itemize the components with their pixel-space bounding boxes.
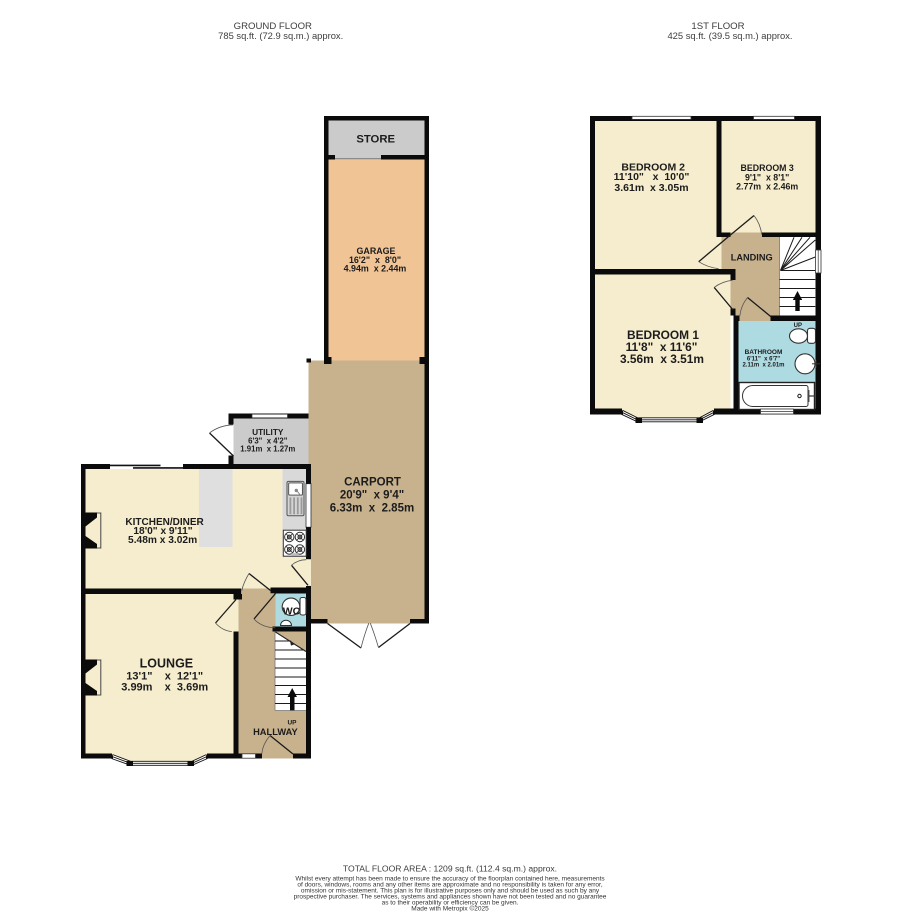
svg-text:UP: UP (287, 719, 297, 726)
svg-text:2.11m x 2.01m: 2.11m x 2.01m (742, 362, 784, 368)
svg-text:6'11" x 6'7": 6'11" x 6'7" (747, 356, 780, 362)
svg-text:4.94m x 2.44m: 4.94m x 2.44m (344, 264, 407, 274)
svg-text:BATHROOM: BATHROOM (745, 349, 783, 356)
svg-text:TOTAL FLOOR AREA : 1209 sq.ft.: TOTAL FLOOR AREA : 1209 sq.ft. (112.4 sq… (343, 863, 557, 873)
svg-text:2.77m x 2.46m: 2.77m x 2.46m (736, 182, 798, 192)
svg-text:CARPORT: CARPORT (344, 477, 401, 489)
svg-text:20'9" x 9'4": 20'9" x 9'4" (340, 490, 404, 502)
svg-text:Made with Metropix ©2025: Made with Metropix ©2025 (411, 905, 489, 913)
svg-text:3.56m x 3.51m: 3.56m x 3.51m (620, 352, 704, 366)
svg-text:5.48m x 3.02m: 5.48m x 3.02m (128, 535, 197, 546)
svg-text:BEDROOM 3: BEDROOM 3 (741, 163, 794, 173)
svg-text:3.99m x 3.69m: 3.99m x 3.69m (121, 682, 208, 694)
svg-text:3.61m x 3.05m: 3.61m x 3.05m (614, 182, 688, 194)
svg-text:1.91m x 1.27m: 1.91m x 1.27m (240, 445, 295, 454)
svg-text:LOUNGE: LOUNGE (140, 657, 193, 671)
svg-text:WC: WC (283, 606, 301, 618)
svg-text:HALLWAY: HALLWAY (253, 727, 298, 737)
svg-text:425 sq.ft. (39.5 sq.m.) approx: 425 sq.ft. (39.5 sq.m.) approx. (667, 30, 792, 41)
svg-text:785 sq.ft. (72.9 sq.m.) approx: 785 sq.ft. (72.9 sq.m.) approx. (218, 30, 343, 41)
svg-text:13'1" x 12'1": 13'1" x 12'1" (126, 670, 203, 682)
svg-text:6.33m x 2.85m: 6.33m x 2.85m (330, 502, 414, 514)
svg-text:UP: UP (794, 323, 802, 329)
svg-text:LANDING: LANDING (731, 252, 773, 262)
svg-text:STORE: STORE (356, 134, 395, 146)
